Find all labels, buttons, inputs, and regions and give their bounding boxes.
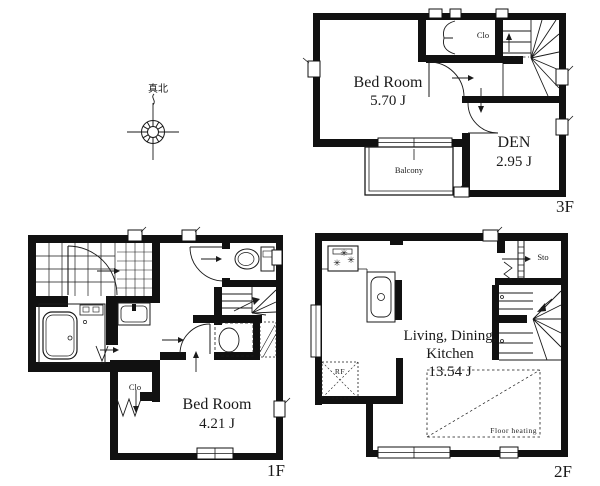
tile-grid-entry (117, 243, 152, 296)
stairs-1f (222, 287, 276, 315)
bathroom-unit (39, 304, 105, 363)
balcony-label-3f: Balcony (395, 165, 424, 175)
bedroom-door-3f (429, 62, 464, 97)
kitchen-counter: ✳ ✳ ✳ (322, 246, 395, 322)
burner-icon: ✳ (340, 248, 348, 258)
window-bottom-large-2f (378, 447, 450, 458)
bathroom-folding-door (96, 346, 108, 361)
window-left-2f (311, 305, 321, 357)
bath-counter (80, 305, 103, 315)
compass-icon: 真北 (127, 82, 179, 160)
floor-heating-label-2f: Floor heating (490, 426, 537, 435)
floor-plan-1f: Clo Bed Room 4.21 J 1F (28, 227, 290, 480)
ldk-area: 13.54 J (428, 364, 472, 380)
tile-grid-porch (36, 243, 115, 296)
floor-label-3f: 3F (556, 197, 574, 216)
toilet-icon (235, 247, 274, 271)
loft-ladder-icon (502, 241, 531, 280)
window-bottom-small-2f (500, 447, 518, 458)
bedroom-name-1f: Bed Room (183, 396, 252, 413)
bathtub-icon (43, 312, 77, 359)
stairs-up-arrow-1f (252, 297, 260, 305)
floorplan-canvas: 真北 (0, 0, 600, 486)
ldk-name-line1: Living, Dining, (404, 328, 497, 344)
floor-label-2f: 2F (554, 462, 572, 481)
burner-icon: ✳ (347, 255, 355, 265)
floor-label-1f: 1F (267, 461, 285, 480)
closet-label-3f: Clo (477, 30, 489, 40)
washbasin-icon (118, 303, 150, 325)
bedroom-area-1f: 4.21 J (199, 416, 235, 432)
storage-label-2f: Sto (537, 252, 548, 262)
den-area-3f: 2.95 J (496, 154, 532, 170)
window-bottom-1f (197, 448, 233, 459)
floorplan-drawing: 真北 (0, 0, 600, 486)
bedroom-name-3f: Bed Room (354, 74, 423, 91)
closet-label-1f: Clo (129, 382, 141, 392)
toilet-door-1f (190, 247, 224, 281)
stairs-2f (499, 291, 561, 360)
ldk-name-line2: Kitchen (426, 346, 474, 362)
balcony-window-3f (378, 138, 452, 147)
hatched-area-1f (260, 322, 276, 357)
floor-plan-3f: Bed Room 5.70 J Clo DEN 2.95 J Balcony 3… (303, 9, 574, 216)
true-north-label: 真北 (148, 82, 168, 95)
refrigerator-label-2f: RF (335, 367, 345, 376)
washing-machine-space (215, 323, 253, 356)
closet-doors-3f (443, 21, 455, 54)
bedroom-door-1f (180, 324, 210, 354)
stairs-up-arrow-3f (506, 33, 512, 40)
stairs-up-arrow-2f (537, 303, 546, 312)
den-name-3f: DEN (498, 134, 531, 151)
bedroom-area-3f: 5.70 J (370, 93, 406, 109)
compass-inner-circle (148, 127, 159, 138)
floor-plan-2f: ✳ ✳ ✳ (311, 227, 572, 481)
burner-icon: ✳ (333, 258, 341, 268)
